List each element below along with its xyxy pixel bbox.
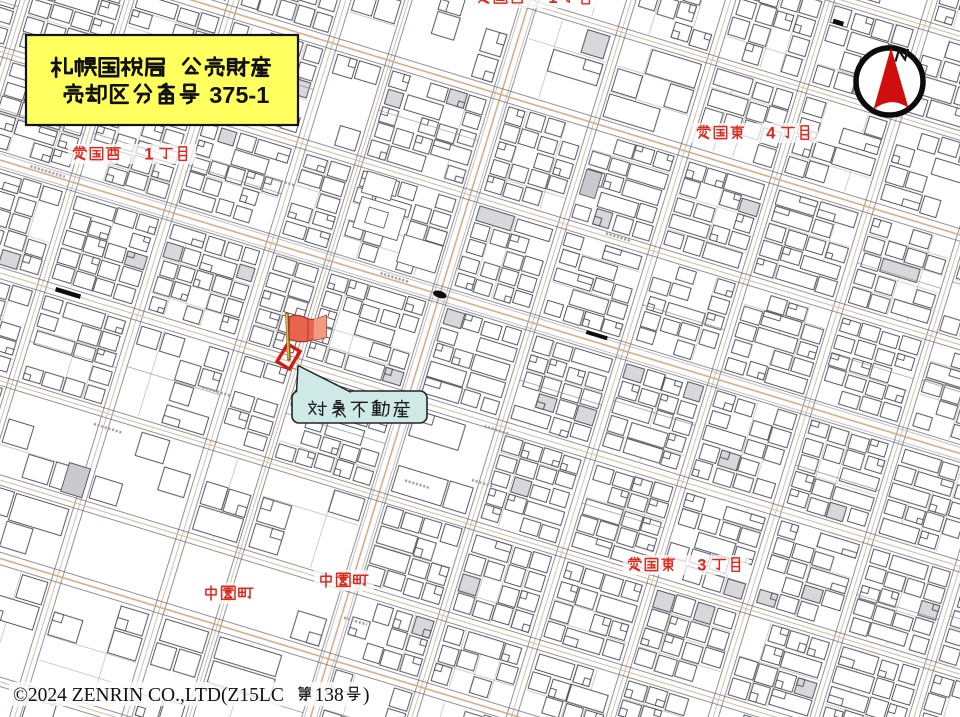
svg-text:3: 3 bbox=[697, 556, 706, 574]
svg-text:4: 4 bbox=[766, 124, 776, 142]
svg-text:©2024 ZENRIN CO.,LTD(Z15LC: ©2024 ZENRIN CO.,LTD(Z15LC bbox=[13, 685, 284, 706]
svg-text:1: 1 bbox=[144, 145, 153, 163]
svg-text:1: 1 bbox=[548, 0, 557, 7]
svg-text:138: 138 bbox=[315, 685, 344, 706]
svg-text:375-1: 375-1 bbox=[209, 82, 269, 108]
svg-text:): ) bbox=[363, 685, 370, 706]
